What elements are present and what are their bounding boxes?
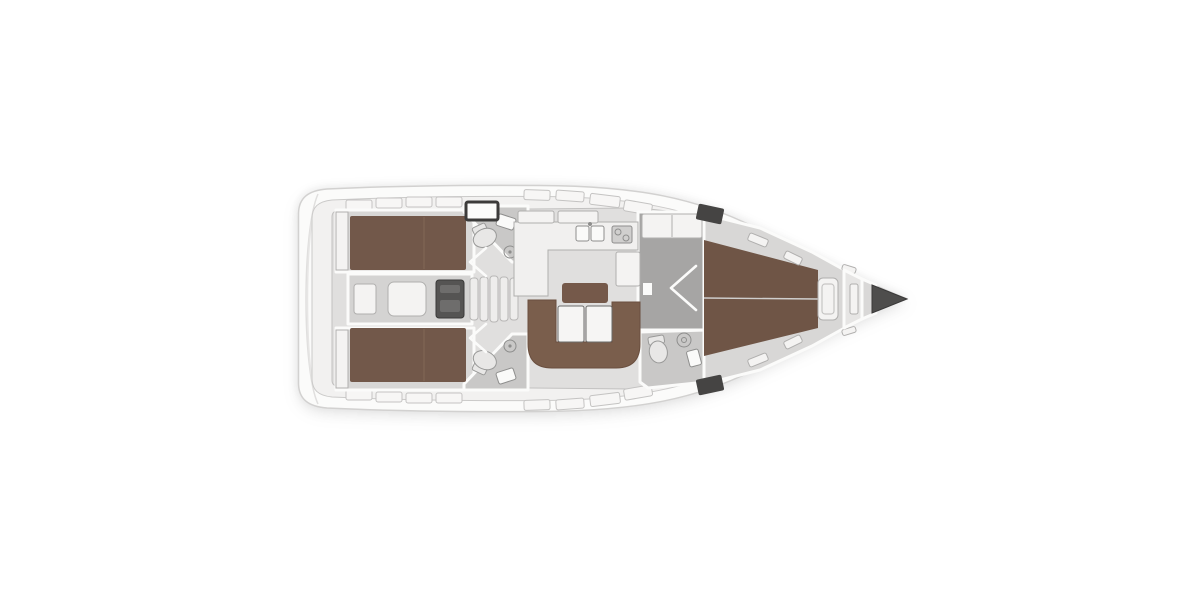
bow-tip	[872, 285, 907, 313]
companionway-hatch	[466, 202, 498, 220]
bow	[844, 270, 907, 328]
hull-window	[376, 392, 402, 402]
stove	[612, 226, 632, 243]
galley-sink	[576, 226, 589, 241]
shower-dot	[508, 344, 511, 347]
upper-cabinet	[558, 211, 598, 223]
floor-plan-canvas	[0, 0, 1200, 600]
companionway-stairs	[470, 276, 518, 322]
wardrobe	[336, 330, 348, 388]
hull-window	[556, 398, 585, 410]
seat	[354, 284, 376, 314]
hull-window	[406, 197, 432, 207]
chain-locker	[850, 284, 858, 314]
stair-tread	[470, 278, 478, 320]
stair-tread	[500, 277, 508, 321]
door-stop	[643, 283, 652, 295]
engine-box	[388, 282, 426, 316]
hull-window	[556, 190, 585, 202]
stair-tread	[490, 276, 498, 322]
upper-cabinet	[518, 211, 554, 223]
hull-window	[436, 197, 462, 207]
salon-table-leaf	[586, 306, 612, 342]
hull-window	[406, 393, 432, 403]
aft-berth-port	[350, 216, 466, 270]
salon-table-leaf	[558, 306, 584, 342]
salon-ottoman	[562, 283, 608, 303]
aft-berth-starboard	[350, 328, 466, 382]
galley-sink	[591, 226, 604, 241]
yacht-floor-plan	[0, 0, 1200, 600]
hull-window	[524, 400, 550, 411]
v-berth-seam	[704, 298, 818, 299]
hull-window	[524, 190, 550, 201]
stair-tread	[480, 277, 488, 321]
galley-cabinet	[616, 252, 640, 286]
wardrobe	[336, 212, 348, 270]
engine-detail	[440, 285, 460, 293]
engine-detail	[440, 300, 460, 312]
faucet	[588, 222, 592, 226]
shower-dot	[508, 250, 511, 253]
hull-window	[376, 198, 402, 208]
hull-window	[436, 393, 462, 403]
